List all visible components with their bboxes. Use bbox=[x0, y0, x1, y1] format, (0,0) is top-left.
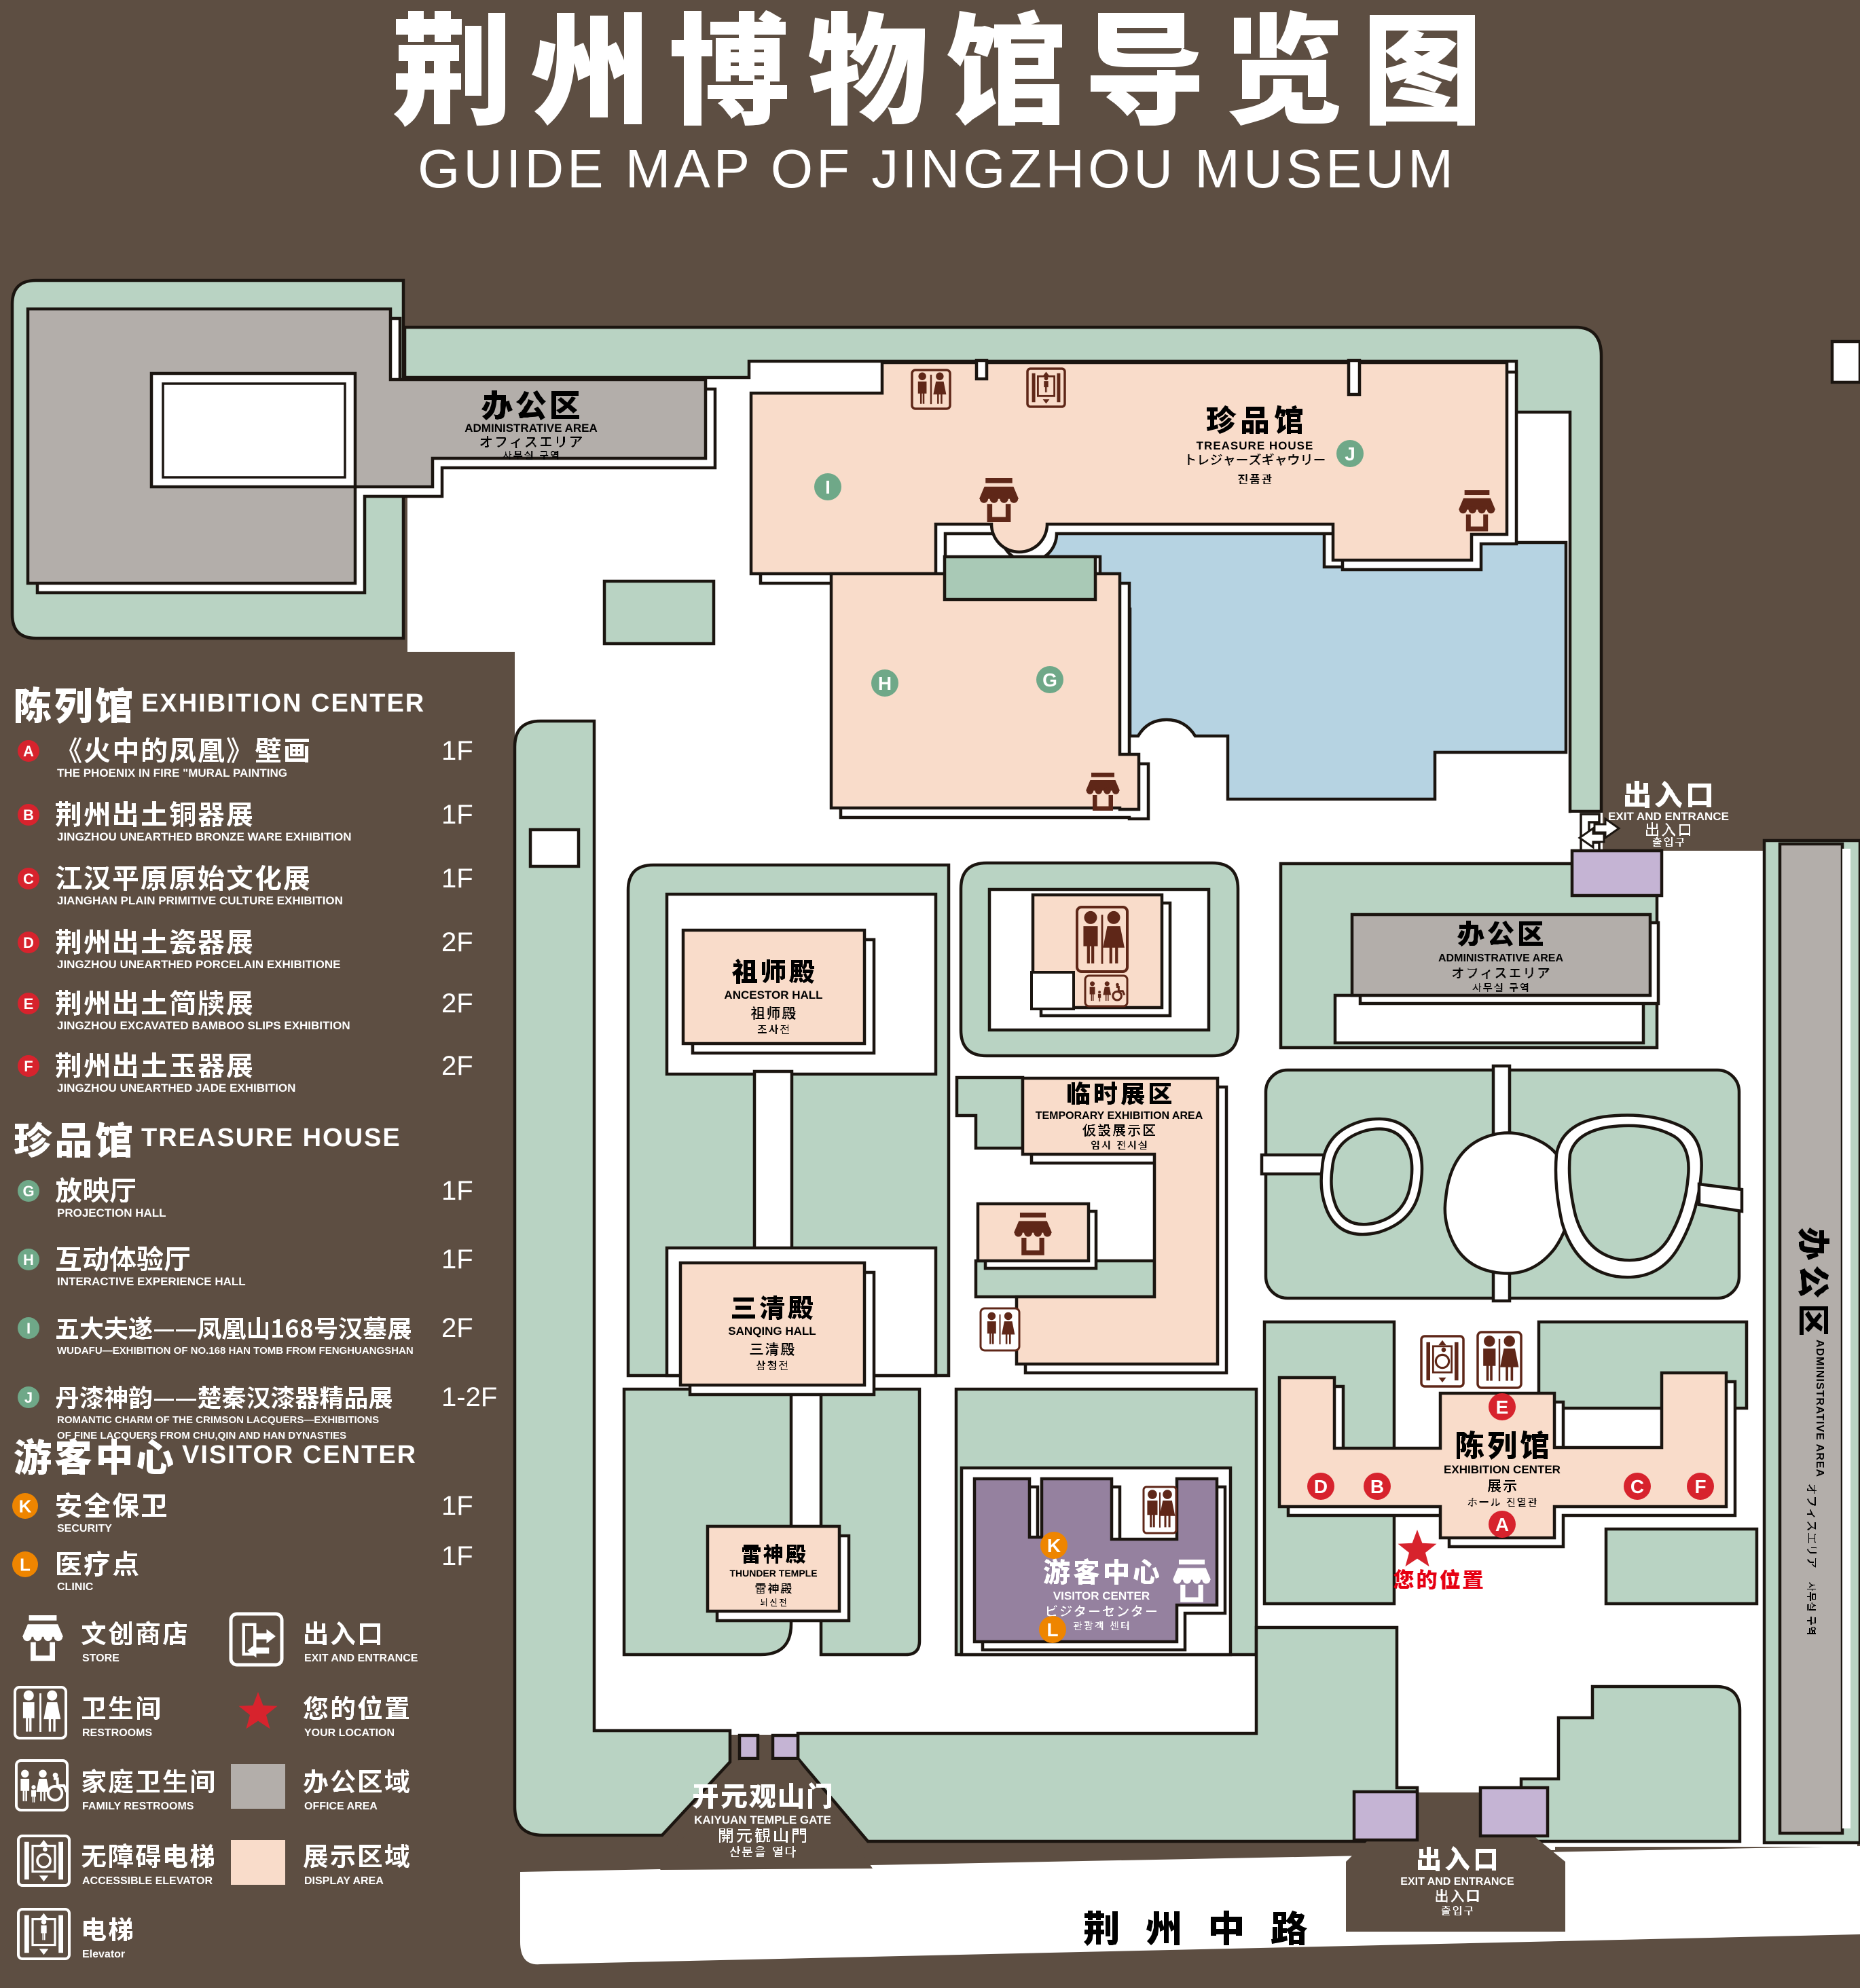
svg-text:E: E bbox=[1496, 1397, 1509, 1418]
svg-text:H: H bbox=[23, 1251, 34, 1268]
svg-text:ACCESSIBLE ELEVATOR: ACCESSIBLE ELEVATOR bbox=[82, 1875, 213, 1887]
svg-text:1F: 1F bbox=[441, 1176, 473, 1206]
svg-text:RESTROOMS: RESTROOMS bbox=[82, 1727, 152, 1739]
svg-text:L: L bbox=[20, 1554, 31, 1575]
svg-text:J: J bbox=[24, 1389, 33, 1406]
svg-text:K: K bbox=[1047, 1535, 1061, 1556]
svg-text:WUDAFU—EXHIBITION OF NO.168 HA: WUDAFU—EXHIBITION OF NO.168 HAN TOMB FRO… bbox=[57, 1345, 414, 1357]
svg-text:ANCESTOR HALL: ANCESTOR HALL bbox=[724, 989, 822, 1001]
svg-text:J: J bbox=[1345, 443, 1355, 464]
svg-text:D: D bbox=[1314, 1476, 1328, 1497]
svg-text:G: G bbox=[22, 1183, 34, 1200]
svg-text:I: I bbox=[825, 477, 831, 498]
svg-text:THE PHOENIX IN FIRE "MURAL PAI: THE PHOENIX IN FIRE "MURAL PAINTING bbox=[57, 767, 287, 779]
svg-text:I: I bbox=[26, 1320, 31, 1337]
svg-text:A: A bbox=[1495, 1514, 1509, 1535]
svg-text:2F: 2F bbox=[441, 989, 473, 1018]
svg-text:C: C bbox=[1630, 1476, 1644, 1497]
svg-text:F: F bbox=[24, 1058, 33, 1075]
svg-text:STORE: STORE bbox=[82, 1653, 120, 1664]
svg-text:2F: 2F bbox=[441, 1051, 473, 1081]
svg-text:1F: 1F bbox=[441, 1491, 473, 1521]
svg-text:EXHIBITION CENTER: EXHIBITION CENTER bbox=[141, 689, 425, 718]
svg-text:TREASURE HOUSE: TREASURE HOUSE bbox=[1197, 439, 1314, 452]
svg-text:1F: 1F bbox=[441, 736, 473, 766]
svg-text:GUIDE MAP OF JINGZHOU MUSEUM: GUIDE MAP OF JINGZHOU MUSEUM bbox=[418, 139, 1457, 199]
svg-text:VISITOR CENTER: VISITOR CENTER bbox=[1053, 1589, 1150, 1602]
svg-text:EXHIBITION CENTER: EXHIBITION CENTER bbox=[1444, 1463, 1561, 1476]
svg-text:TREASURE HOUSE: TREASURE HOUSE bbox=[141, 1124, 401, 1152]
svg-text:JINGZHOU UNEARTHED PORCELAIN E: JINGZHOU UNEARTHED PORCELAIN EXHIBITIONE bbox=[57, 958, 340, 971]
svg-text:OFFICE AREA: OFFICE AREA bbox=[304, 1801, 378, 1812]
svg-text:ROMANTIC CHARM OF THE CRIMSON: ROMANTIC CHARM OF THE CRIMSON LACQUERS—E… bbox=[57, 1414, 379, 1426]
svg-text:D: D bbox=[23, 934, 34, 951]
svg-text:TEMPORARY EXHIBITION AREA: TEMPORARY EXHIBITION AREA bbox=[1036, 1110, 1203, 1122]
svg-text:E: E bbox=[24, 995, 34, 1012]
svg-text:EXIT AND ENTRANCE: EXIT AND ENTRANCE bbox=[304, 1653, 418, 1664]
svg-text:2F: 2F bbox=[441, 1313, 473, 1343]
svg-text:DISPLAY AREA: DISPLAY AREA bbox=[304, 1875, 384, 1887]
svg-text:YOUR LOCATION: YOUR LOCATION bbox=[304, 1727, 395, 1739]
svg-text:INTERACTIVE EXPERIENCE HALL: INTERACTIVE EXPERIENCE HALL bbox=[57, 1275, 246, 1288]
svg-text:ADMINISTRATIVE AREA: ADMINISTRATIVE AREA bbox=[464, 422, 598, 435]
svg-text:VISITOR CENTER: VISITOR CENTER bbox=[182, 1441, 417, 1469]
svg-text:KAIYUAN TEMPLE GATE: KAIYUAN TEMPLE GATE bbox=[694, 1814, 831, 1826]
svg-text:SECURITY: SECURITY bbox=[57, 1523, 112, 1534]
svg-text:L: L bbox=[1046, 1619, 1058, 1640]
svg-text:2F: 2F bbox=[441, 927, 473, 957]
svg-text:F: F bbox=[1694, 1476, 1706, 1497]
svg-text:C: C bbox=[23, 870, 34, 887]
svg-text:B: B bbox=[1370, 1476, 1384, 1497]
svg-text:1F: 1F bbox=[441, 1541, 473, 1571]
svg-text:THUNDER TEMPLE: THUNDER TEMPLE bbox=[729, 1568, 817, 1579]
svg-text:JINGZHOU UNEARTHED JADE EXHIBI: JINGZHOU UNEARTHED JADE EXHIBITION bbox=[57, 1082, 295, 1094]
svg-text:EXIT AND ENTRANCE: EXIT AND ENTRANCE bbox=[1608, 810, 1729, 823]
svg-text:G: G bbox=[1042, 669, 1057, 691]
svg-text:SANQING HALL: SANQING HALL bbox=[728, 1325, 816, 1338]
svg-text:PROJECTION HALL: PROJECTION HALL bbox=[57, 1207, 166, 1219]
svg-text:Elevator: Elevator bbox=[82, 1949, 125, 1960]
svg-text:CLINIC: CLINIC bbox=[57, 1581, 94, 1593]
svg-text:A: A bbox=[23, 743, 34, 760]
svg-text:FAMILY RESTROOMS: FAMILY RESTROOMS bbox=[82, 1801, 194, 1812]
svg-text:ADMINISTRATIVE AREA: ADMINISTRATIVE AREA bbox=[1814, 1340, 1825, 1477]
svg-text:1F: 1F bbox=[441, 1245, 473, 1274]
svg-text:JINGZHOU UNEARTHED BRONZE WARE: JINGZHOU UNEARTHED BRONZE WARE EXHIBITIO… bbox=[57, 830, 352, 843]
svg-text:1-2F: 1-2F bbox=[441, 1382, 497, 1412]
svg-text:ADMINISTRATIVE AREA: ADMINISTRATIVE AREA bbox=[1438, 953, 1563, 964]
svg-text:1F: 1F bbox=[441, 800, 473, 830]
svg-text:OF FINE LACQUERS FROM CHU,QIN: OF FINE LACQUERS FROM CHU,QIN AND HAN DY… bbox=[57, 1430, 346, 1441]
svg-text:H: H bbox=[878, 673, 892, 694]
svg-text:JINGZHOU EXCAVATED BAMBOO SLIP: JINGZHOU EXCAVATED BAMBOO SLIPS EXHIBITI… bbox=[57, 1019, 350, 1032]
svg-text:1F: 1F bbox=[441, 864, 473, 894]
svg-text:B: B bbox=[23, 807, 34, 824]
svg-text:JIANGHAN PLAIN PRIMITIVE CULTU: JIANGHAN PLAIN PRIMITIVE CULTURE EXHIBIT… bbox=[57, 894, 343, 907]
svg-text:EXIT AND ENTRANCE: EXIT AND ENTRANCE bbox=[1400, 1876, 1514, 1888]
svg-text:K: K bbox=[19, 1496, 32, 1516]
